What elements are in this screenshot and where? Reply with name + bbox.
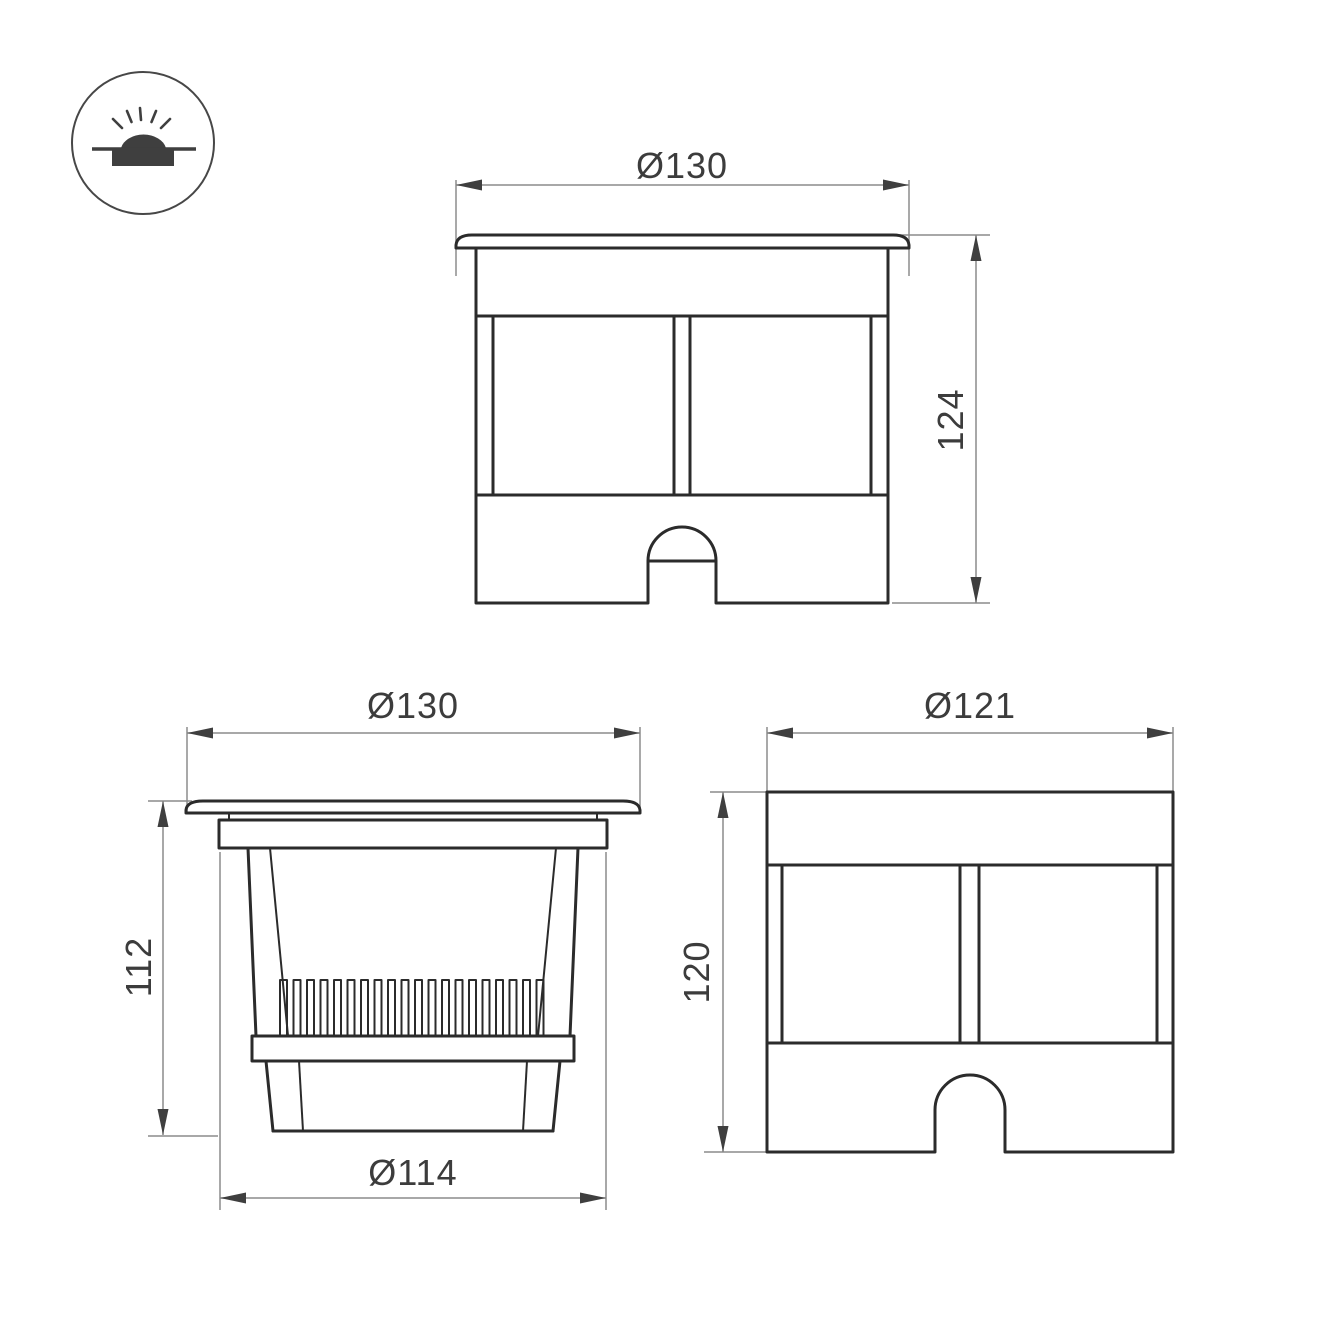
arrowhead-up: [158, 801, 169, 827]
arrowhead-right: [614, 728, 640, 739]
drawing-svg: Ø130 124 Ø130: [0, 0, 1331, 1331]
luminaire-body-icon: [112, 150, 174, 166]
section-driver-base: [266, 1061, 560, 1131]
front-view: Ø130 124: [456, 145, 990, 603]
front-housing: [476, 248, 888, 603]
section-base-dimension: Ø114: [220, 852, 606, 1210]
arrowhead-left: [767, 728, 793, 739]
arrowhead-right: [580, 1193, 606, 1204]
body-view: Ø121 120: [676, 685, 1173, 1152]
arrowhead-down: [718, 1126, 729, 1152]
arrowhead-left: [220, 1193, 246, 1204]
body-width-dimension: Ø121: [767, 685, 1173, 797]
body-width-label: Ø121: [924, 685, 1016, 726]
technical-drawing-page: Ø130 124 Ø130: [0, 0, 1331, 1331]
section-outer-wall-right: [570, 848, 578, 1036]
section-width-dimension: Ø130: [187, 685, 640, 812]
front-flange: [456, 235, 909, 248]
luminaire-dome-icon: [121, 135, 166, 148]
arrowhead-right: [883, 180, 909, 191]
front-center-mullion: [674, 316, 690, 495]
section-base-label: Ø114: [368, 1152, 457, 1193]
body-housing: [767, 792, 1173, 1152]
body-height-label: 120: [676, 940, 717, 1003]
section-heatsink-fins: [280, 980, 544, 1036]
arrowhead-left: [187, 728, 213, 739]
section-inner-wall-right: [538, 848, 556, 1036]
recessed-ground-light-icon: [72, 72, 214, 214]
front-width-label: Ø130: [636, 145, 728, 186]
front-height-label: 124: [930, 388, 971, 451]
body-center-mullion: [960, 865, 979, 1043]
section-flange: [186, 801, 640, 813]
arrowhead-up: [971, 235, 982, 261]
section-height-label: 112: [118, 937, 159, 997]
arrowhead-up: [718, 792, 729, 818]
section-heatsink-plate: [252, 1036, 574, 1061]
front-height-dimension: 124: [892, 235, 990, 603]
arrowhead-left: [456, 180, 482, 191]
section-view: Ø130 112 Ø114: [118, 685, 640, 1210]
light-rays-icon: [113, 108, 170, 128]
front-cable-arch: [648, 527, 716, 561]
section-outer-wall-left: [248, 848, 256, 1036]
arrowhead-down: [158, 1109, 169, 1135]
section-width-label: Ø130: [367, 685, 459, 726]
body-height-dimension: 120: [676, 792, 766, 1152]
arrowhead-down: [971, 577, 982, 603]
arrowhead-right: [1147, 728, 1173, 739]
section-height-dimension: 112: [118, 801, 218, 1136]
front-width-dimension: Ø130: [456, 145, 909, 276]
section-clamp-ring: [219, 820, 607, 848]
